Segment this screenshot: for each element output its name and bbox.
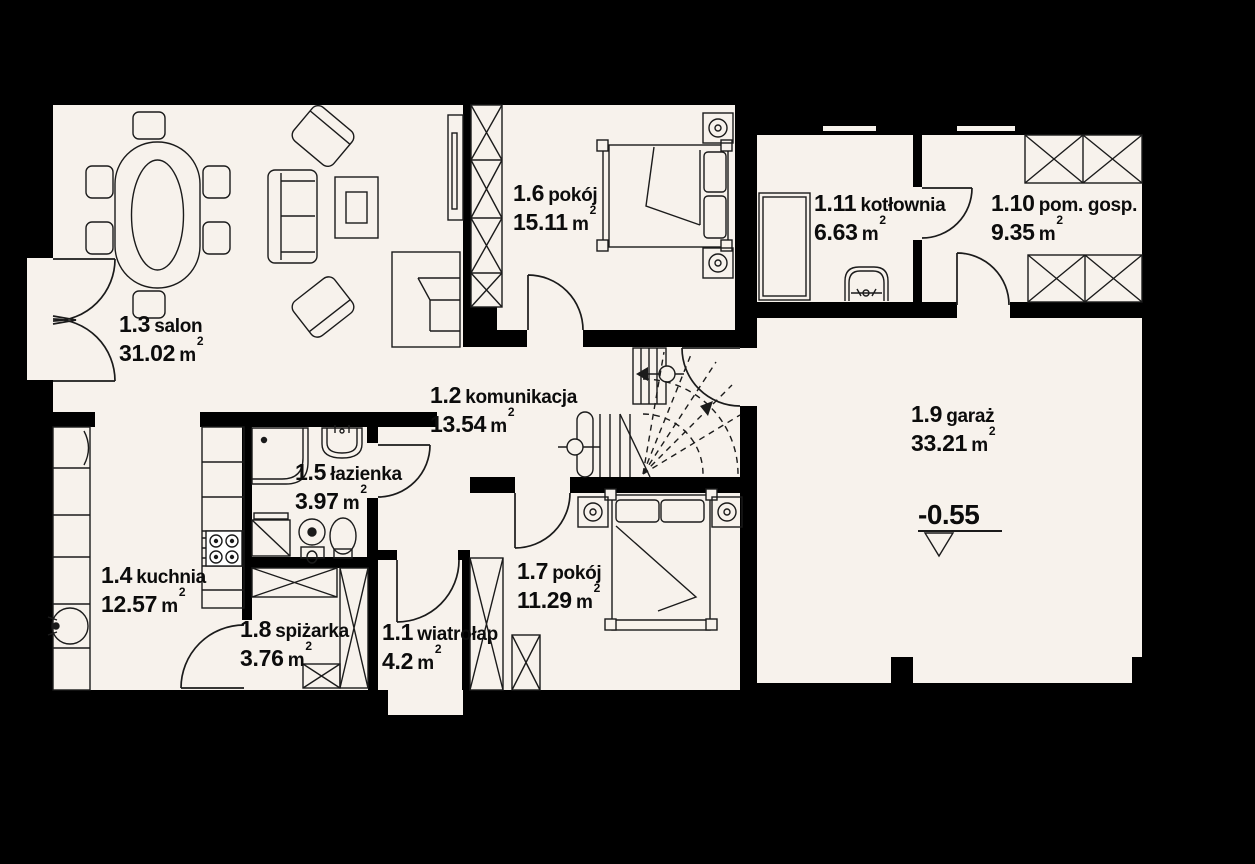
level-value: -0.55 <box>918 499 979 531</box>
level-marker-icon <box>918 531 1002 556</box>
sofa-icon <box>268 170 317 263</box>
room-label-pomgosp: 1.10 pom. gosp. 9.35 m2 <box>991 191 1137 245</box>
door-swing-vestibule <box>397 560 459 622</box>
door-swing-utility-garage <box>957 253 1009 305</box>
kitchen-counter-icon <box>202 427 244 608</box>
dining-table-icon <box>115 142 200 288</box>
room-label-pokoj-16: 1.6 pokój 15.11 m2 <box>513 181 597 235</box>
wardrobe-icon <box>471 105 502 307</box>
room-label-kotlownia: 1.11 kotłownia 6.63 m2 <box>814 191 945 245</box>
nightstand-icon <box>578 497 742 527</box>
washing-machine-icon <box>252 513 290 556</box>
fireplace-icon <box>392 252 460 347</box>
room-label-salon: 1.3 salon 31.02 m2 <box>119 312 202 366</box>
double-bed-icon <box>597 140 732 251</box>
toilet-icon <box>299 519 325 563</box>
room-label-wiatrolap: 1.1 wiatrołap 4.2 m2 <box>382 620 498 674</box>
stairs-icon <box>558 348 740 477</box>
room-label-spizarka: 1.8 spiżarka 3.76 m2 <box>240 617 349 671</box>
room-label-kuchnia: 1.4 kuchnia 12.57 m2 <box>101 563 206 617</box>
door-swing-room16 <box>528 275 583 330</box>
kitchen-sink-icon <box>48 608 88 644</box>
door-swing-pantry <box>181 625 244 688</box>
room-label-lazienka: 1.5 łazienka 3.97 m2 <box>295 460 402 514</box>
kitchen-counter-icon <box>53 427 90 690</box>
washbasin-icon <box>322 425 362 458</box>
stove-icon <box>202 531 242 566</box>
armchair-icon <box>289 274 357 341</box>
double-bed-icon <box>605 489 717 630</box>
door-swing-terrace <box>53 259 115 381</box>
floor-plan: 1.1 wiatrołap 4.2 m2 1.2 komunikacja 13.… <box>0 0 1255 864</box>
room-label-pokoj-17: 1.7 pokój 11.29 m2 <box>517 559 601 613</box>
door-swing-room17 <box>515 493 570 548</box>
tv-cabinet-icon <box>448 115 463 220</box>
bidet-icon <box>330 518 356 558</box>
armchair-icon <box>289 102 357 169</box>
plan-symbols <box>0 0 1255 864</box>
room-label-komunikacja: 1.2 komunikacja 13.54 m2 <box>430 383 577 437</box>
boiler-icon <box>759 193 810 300</box>
utility-basin-icon <box>845 267 888 301</box>
coffee-table-icon <box>335 177 378 238</box>
room-label-garaz: 1.9 garaż 33.21 m2 <box>911 402 994 456</box>
